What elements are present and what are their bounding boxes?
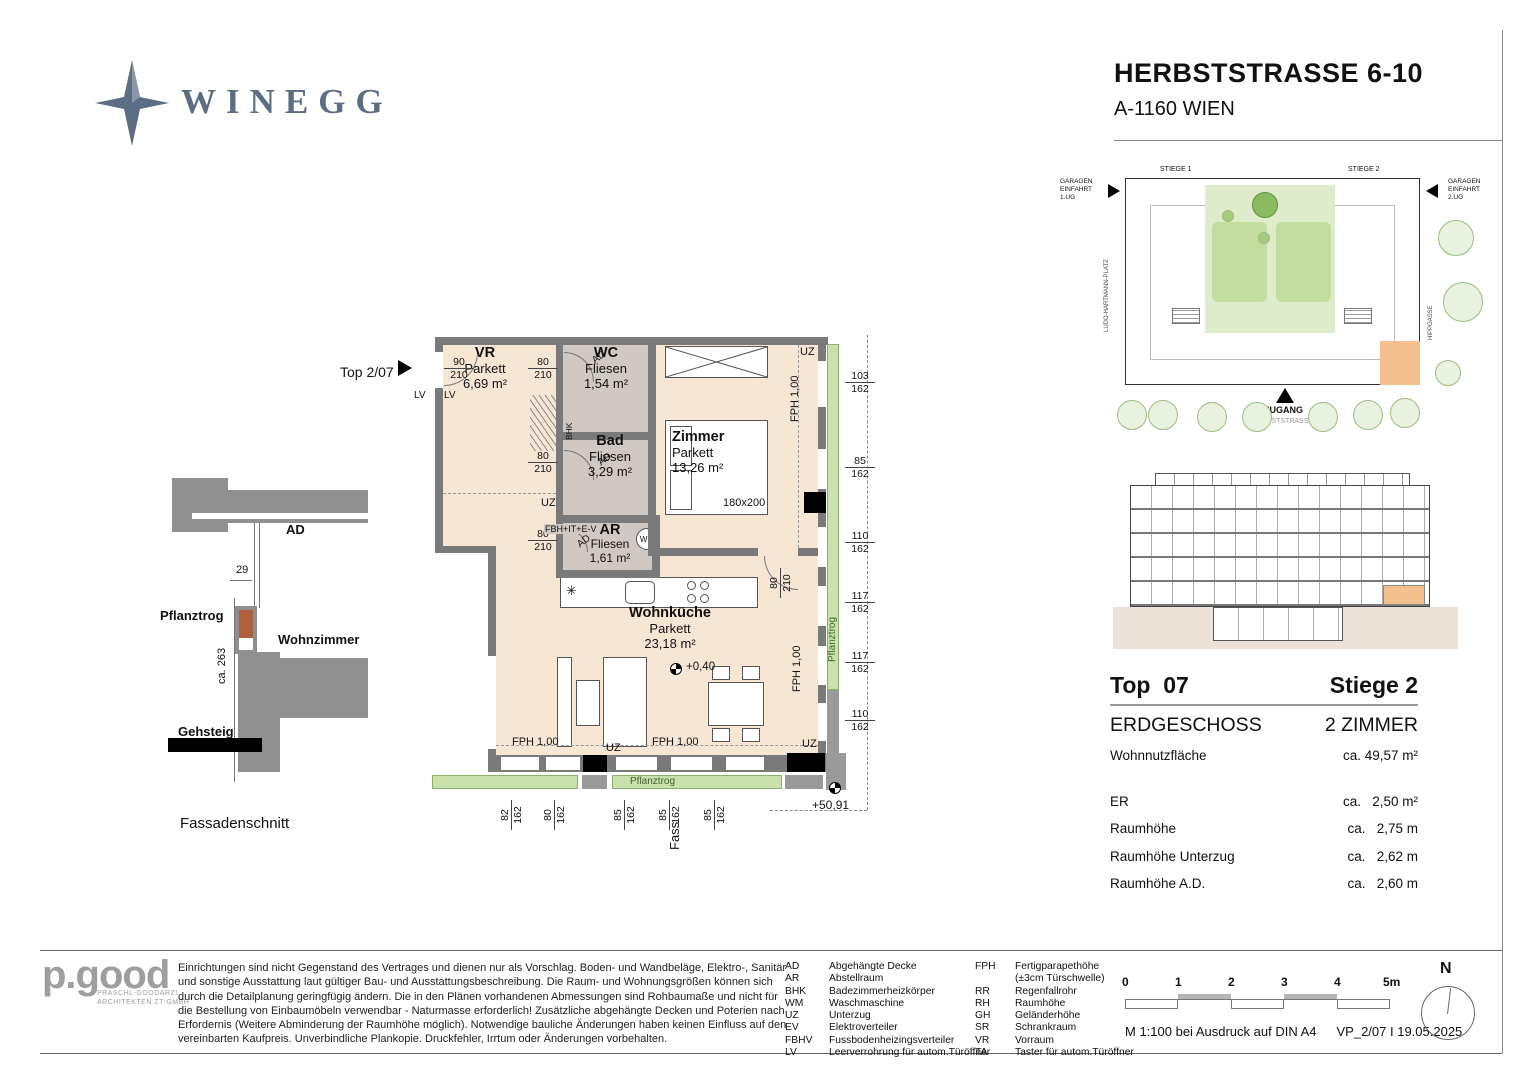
scale-segment [1125,1000,1178,1009]
stairwell [1172,308,1200,324]
legend-row: LVLeerverrohrung für autom.Türöffner [785,1047,990,1059]
room-area: 3,29 m² [568,464,652,479]
pflanztrog-label: Pflanztrog [630,776,675,787]
scale-bar: 0 1 2 3 4 5m [1125,975,1397,1015]
planter-inner [239,638,253,650]
dim-pair: 117 162 [845,590,875,615]
info-row-value: ca. 2,75 m [1110,821,1418,836]
ad-label: AD [286,522,305,537]
planter-soil [239,610,253,638]
window [818,702,826,742]
boundary-dashed [867,335,868,810]
page-subtitle: A-1160 WIEN [1114,98,1235,121]
info-row-value: ca. 49,57 m² [1110,748,1418,763]
uz-dashed-line [443,493,556,494]
dim-pair: 110 162 [845,530,875,555]
legend-row: FBHVFussbodenheizingsverteiler [785,1035,990,1047]
architect-line2: ARCHITEKTEN ZT-GMBH [97,999,189,1006]
kitchen-counter [560,577,758,608]
garage2-arrow-icon [1426,184,1438,198]
width-dim: 29 [236,564,248,576]
dim-pair: 103 162 [845,370,875,395]
highlighted-unit [1380,341,1420,385]
corner-level-label: +50,91 [812,798,849,812]
highlighted-unit-section [1383,585,1425,605]
window [488,655,496,750]
floor-slab [280,698,368,718]
stove-burner [700,581,709,590]
scale-segment [1337,1000,1390,1009]
wall [556,570,660,578]
courtyard-tree [1252,192,1278,218]
wall [656,548,758,556]
wohnzimmer-label: Wohnzimmer [278,632,359,647]
unit-info: Top 07 Stiege 2 ERDGESCHOSS 2 ZIMMER Woh… [1110,670,1422,900]
tree [1242,402,1272,432]
winegg-logo: WINEGG [95,60,425,150]
dim-pair: 117 162 [845,650,875,675]
facade-section-title: Fassadenschnitt [180,815,289,832]
legend-row: RHRaumhöhe [975,998,1134,1010]
floor-plan: Top 2/07 180x200 ✳ [340,330,900,870]
sidewalk [168,738,262,752]
scale-tick-label: 1 [1175,975,1182,989]
fph-label: FPH 1,00 [652,736,698,748]
street-left-label: LUDO-HARTMANN-PLATZ [1104,259,1110,332]
architect-line1: PRASCHL-GOODARZI [97,990,178,997]
level-symbol [829,782,841,794]
sofa-back [557,657,572,747]
scale-tick-label: 2 [1228,975,1235,989]
stiege1-label: STIEGE 1 [1160,166,1192,173]
dim-pair: 80 162 [542,800,567,830]
info-row-value: ca. 2,50 m² [1110,794,1418,809]
column [787,753,825,772]
pflanztrog-label: Pflanztrog [160,608,224,623]
fbh-label: FBH+IT+E-V [544,524,598,534]
pflanztrog-cap [827,690,839,772]
wall [798,548,818,556]
legend-row: (±3cm Türschwelle) [975,973,1134,985]
page-title: HERBSTSTRASSE 6-10 [1114,58,1423,89]
scale-note: M 1:100 bei Ausdruck auf DIN A4 [1125,1024,1317,1039]
pflanztrog-gap [785,775,823,789]
tree [1117,400,1147,430]
room-label-zimmer: Zimmer Parkett 13,26 m² [672,430,762,475]
stove-burner [687,581,696,590]
kitchen-sink [625,581,655,604]
window-section [254,523,260,608]
room-area: 23,18 m² [610,636,730,651]
stove-burner [687,594,696,603]
window [818,448,826,490]
scale-segment [1284,994,1337,999]
dining-table [708,682,764,726]
window [818,645,826,686]
window [818,360,826,408]
legend-row: VRVorraum [975,1035,1134,1047]
footer: p.good PRASCHL-GOODARZI ARCHITEKTEN ZT-G… [40,950,1503,1055]
door-dim-zimmer: 80 210 [768,568,793,598]
zugang-arrow-icon [1276,388,1294,403]
scale-segment [1178,994,1231,999]
dim-pair: 110 162 [845,708,875,733]
unit-pointer-label: Top 2/07 [340,364,394,380]
scale-tick-label: 4 [1334,975,1341,989]
building-section [1110,470,1490,670]
courtyard-lawn [1276,222,1331,302]
tree [1148,400,1178,430]
legend-row: EVElektroverteiler [785,1022,990,1034]
disclaimer-text: Einrichtungen sind nicht Gegenstand des … [178,961,790,1047]
legend-column-left: ADAbgehängte Decke ARAbstellraum BHKBade… [785,961,990,1059]
scale-segment [1231,1000,1284,1009]
fph-label: FPH 1,00 [512,736,558,748]
window [725,757,765,770]
street-right-label: HIPPGASSE [1428,305,1434,340]
pflanztrog-label-right: Pflanztrog [827,617,838,662]
pflanztrog-gap [582,775,607,789]
room-area: 1,61 m² [578,551,642,565]
footer-top-rule [40,950,1502,951]
title-rule [1114,140,1502,141]
tree [1443,282,1483,322]
wall [652,515,660,578]
site-plan: STIEGE 1 STIEGE 2 GARAGEN EINFAHRT 1.UG … [1060,160,1510,445]
garage2-label: GARAGEN EINFAHRT 2.UG [1448,178,1498,202]
legend-row: ADAbgehängte Decke [785,961,990,973]
pflanztrog-strip-bottom [432,775,578,789]
uz-label: UZ [802,738,817,750]
courtyard-tree [1222,210,1234,222]
garage1-arrow-icon [1108,184,1120,198]
uz-label: UZ [800,346,815,358]
window [818,526,826,568]
legend-column-right: FPHFertigparapethöhe (±3cm Türschwelle) … [975,961,1134,1059]
wall [435,337,828,345]
room-label-wohnkueche: Wohnküche Parkett 23,18 m² [610,606,730,651]
height-dim: ca. 263 [216,648,228,684]
brand-name: WINEGG [181,82,393,122]
scale-note-row: M 1:100 bei Ausdruck auf DIN A4VP_2/07 I… [1125,1024,1462,1039]
unit-pointer-arrow-icon [398,360,412,376]
level-symbol [670,663,682,675]
legend-row: BHKBadezimmerheizkörper [785,986,990,998]
scale-tick-label: 3 [1281,975,1288,989]
column [583,755,607,772]
tree [1438,220,1474,256]
legend-row: RRRegenfallrohr [975,986,1134,998]
window [818,585,826,627]
footer-bottom-rule [40,1053,1502,1054]
wardrobe [665,346,768,378]
info-row-value: ca. 2,60 m [1110,876,1418,891]
room-name: Bad [568,434,652,449]
dim-pair: 85 162 [612,800,637,830]
column [804,492,826,513]
lv-label: LV [414,390,426,401]
uz-label: UZ [606,742,621,754]
room-area: 1,54 m² [564,376,648,391]
garage1-label: GARAGEN EINFAHRT 1.UG [1060,178,1106,202]
plan-page: WINEGG HERBSTSTRASSE 6-10 A-1160 WIEN To… [0,0,1527,1080]
room-area: 13,26 m² [672,460,762,475]
legend-row: WMWaschmaschine [785,998,990,1010]
unit-rooms: 2 ZIMMER [1110,714,1418,737]
kitchen-symbol: ✳ [566,583,577,599]
slab [190,490,368,513]
legend-row: UZUnterzug [785,1010,990,1022]
floor-slab [272,658,368,698]
info-row-value: ca. 2,62 m [1110,849,1418,864]
room-name: Zimmer [672,430,762,445]
scale-tick-label: 0 [1122,975,1129,989]
chair [742,666,760,680]
stairwell [1344,308,1372,324]
door-dim-bad: 80 210 [528,450,558,475]
legend-row: TATaster für autom.Türöffner [975,1047,1134,1059]
chair [712,728,730,742]
bed-pillow [670,470,692,510]
room-floor: Fliesen [564,361,648,376]
door-dim-entry: 90 210 [444,356,474,381]
tree [1197,402,1227,432]
wardrobe-cross-icon [666,347,767,377]
legend-row: ARAbstellraum [785,973,990,985]
tree [1308,402,1338,432]
north-label: N [1440,960,1452,978]
window [670,757,713,770]
sofa [603,657,647,747]
window [500,757,540,770]
tree [1390,398,1420,428]
width-dim-line [230,580,252,581]
unit-stiege: Stiege 2 [1110,672,1418,699]
dim-pair: 82 162 [499,800,524,830]
chair [742,728,760,742]
wall [556,337,563,440]
uz-label: UZ [541,497,556,509]
bhk-label: BHK [564,423,574,440]
room-label-wc: WC Fliesen 1,54 m² [564,346,648,391]
dim-pair: 85 162 [845,455,875,480]
legend-row: GHGeländerhöhe [975,1010,1134,1022]
room-name: Wohnküche [610,606,730,621]
legend-row: FPHFertigparapethöhe [975,961,1134,973]
level-label: +0,40 [686,661,715,673]
fass-label: Fass [667,822,682,850]
door-dim-wc: 80 210 [528,356,558,381]
unit-info-rule [1110,704,1418,706]
stove-burner [700,594,709,603]
stiege2-label: STIEGE 2 [1348,166,1380,173]
fph-label-vertical: FPH 1,00 [789,376,801,422]
room-floor: Parkett [672,445,762,460]
basement [1213,607,1343,641]
fph-label-vertical: FPH 1,00 [791,646,803,692]
slab [192,519,368,523]
lv-label: LV [444,390,456,401]
coffee-table [576,680,600,726]
winegg-star-icon [95,60,169,146]
dim-pair: 85 162 [702,800,727,830]
room-floor: Parkett [610,621,730,636]
window [545,757,581,770]
architect-logo: p.good [42,956,169,994]
height-dim-line [234,598,235,782]
gehsteig-label: Gehsteig [178,724,234,739]
facade-section: AD 29 Pflanztrog Wohnzimmer ca. 263 Gehs… [160,470,400,850]
window [615,757,658,770]
bed-size-label: 180x200 [723,497,765,509]
scale-tick-label: 5m [1383,975,1400,989]
tree [1435,360,1461,386]
tree [1353,400,1383,430]
courtyard-tree [1258,232,1270,244]
legend-row: SRSchrankraum [975,1022,1134,1034]
wall [435,546,496,553]
